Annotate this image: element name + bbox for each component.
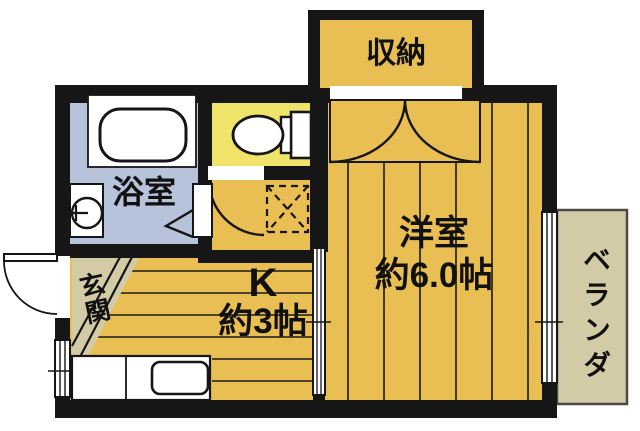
closet-label: 収納 — [330, 38, 462, 70]
bathroom-label: 浴室 — [92, 176, 196, 210]
kitchen-counter — [72, 356, 210, 400]
front-door-arc — [4, 261, 57, 314]
kitchen-size-label: 約3帖 — [183, 304, 343, 341]
kitchen-sink — [152, 362, 208, 394]
toilet — [233, 112, 311, 158]
wall-toilet-right — [310, 85, 328, 252]
western-room-label: 洋室 — [374, 216, 494, 253]
front-door-leaf — [4, 254, 57, 261]
kitchen-label: K — [213, 262, 313, 304]
wall-bottom — [55, 400, 557, 418]
floor-plan: 収納 浴室 玄関 K 約3帖 洋室 約6.0帖 ベランダ — [0, 0, 640, 431]
western-room-size-label: 約6.0帖 — [352, 258, 516, 295]
balcony-label: ベランダ — [574, 226, 610, 404]
front-door-opening — [55, 256, 70, 318]
toilet-door-opening — [208, 166, 264, 180]
wall-bath-bottom — [55, 244, 212, 258]
floor-plan-drawing — [0, 0, 640, 431]
bathtub — [88, 95, 196, 167]
